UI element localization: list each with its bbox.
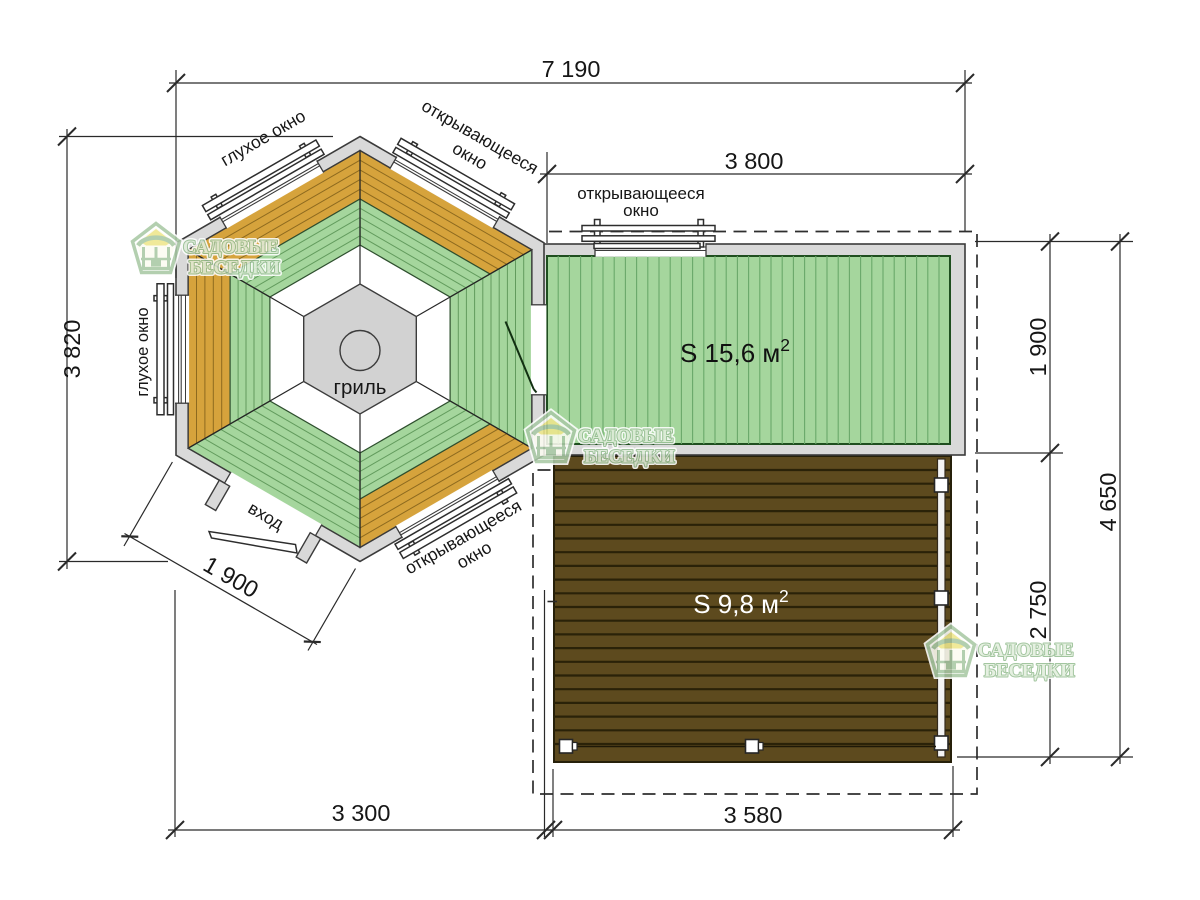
- svg-text:3 800: 3 800: [725, 148, 784, 174]
- svg-text:БЕСЕДКИ: БЕСЕДКИ: [984, 662, 1075, 682]
- svg-text:1 900: 1 900: [1025, 318, 1051, 377]
- svg-text:БЕСЕДКИ: БЕСЕДКИ: [584, 448, 675, 468]
- svg-text:S 9,8 м2: S 9,8 м2: [693, 586, 789, 619]
- svg-text:БЕСЕДКИ: БЕСЕДКИ: [189, 259, 280, 279]
- svg-text:7 190: 7 190: [542, 56, 601, 82]
- svg-text:3 820: 3 820: [59, 320, 85, 379]
- svg-text:САДОВЫЕ: САДОВЫЕ: [183, 238, 279, 258]
- svg-text:гриль: гриль: [334, 376, 387, 399]
- svg-text:глухое окно: глухое окно: [134, 307, 152, 396]
- svg-text:3 300: 3 300: [332, 800, 391, 826]
- svg-text:3 580: 3 580: [724, 802, 783, 828]
- svg-text:4 650: 4 650: [1095, 473, 1121, 532]
- svg-text:S 15,6 м2: S 15,6 м2: [680, 335, 790, 368]
- svg-text:САДОВЫЕ: САДОВЫЕ: [978, 641, 1074, 661]
- svg-text:2 750: 2 750: [1025, 581, 1051, 640]
- svg-text:окно: окно: [623, 201, 659, 220]
- svg-text:САДОВЫЕ: САДОВЫЕ: [578, 427, 674, 447]
